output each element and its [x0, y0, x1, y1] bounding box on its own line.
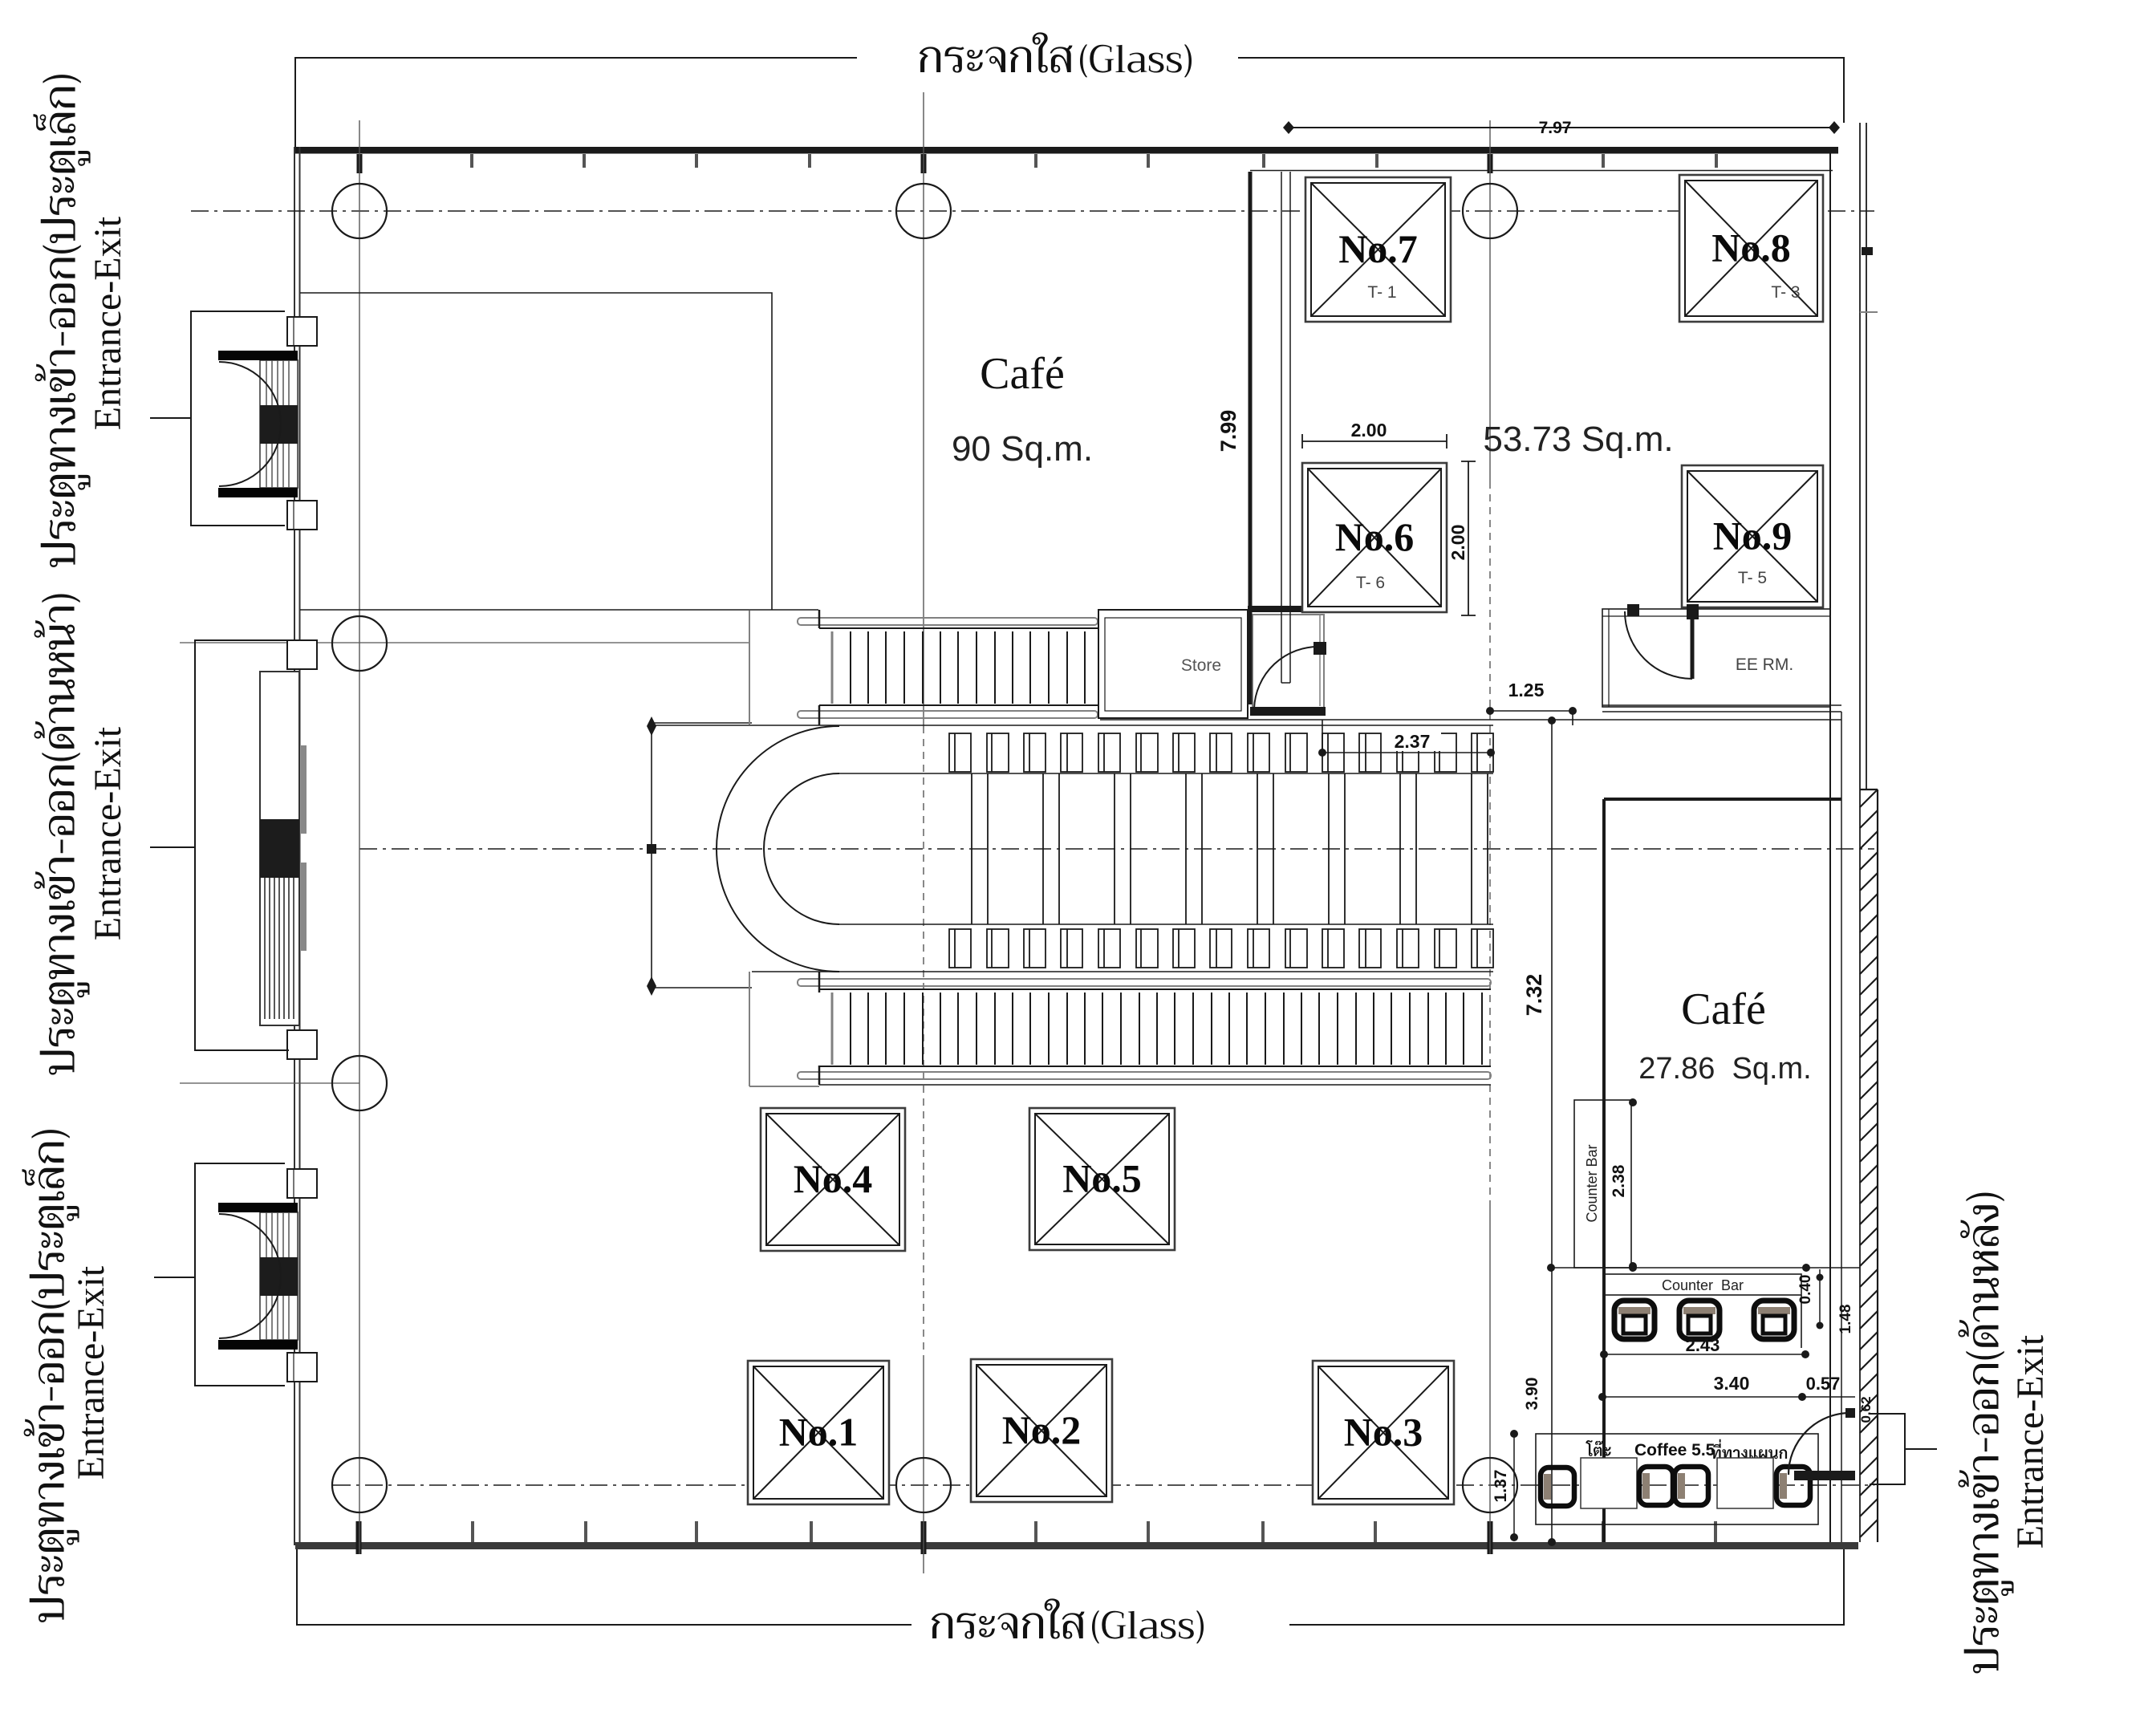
svg-text:1.25: 1.25: [1508, 680, 1545, 700]
svg-text:Entrance-Exit: Entrance-Exit: [70, 1265, 112, 1480]
svg-text:Café: Café: [980, 349, 1065, 399]
svg-text:0.62: 0.62: [1858, 1396, 1874, 1423]
svg-text:Store: Store: [1181, 656, 1221, 675]
svg-text:No.3: No.3: [1344, 1410, 1423, 1455]
svg-text:27.86 Sq.m.: 27.86 Sq.m.: [1638, 1052, 1811, 1086]
svg-text:No.6: No.6: [1335, 514, 1415, 559]
svg-text:EE RM.: EE RM.: [1736, 656, 1793, 674]
svg-text:1.48: 1.48: [1837, 1305, 1854, 1334]
svg-text:T- 3: T- 3: [1771, 283, 1800, 302]
svg-text:7.32: 7.32: [1522, 974, 1546, 1017]
svg-text:3.40: 3.40: [1714, 1373, 1750, 1394]
svg-text:No.8: No.8: [1711, 225, 1791, 270]
svg-text:1.37: 1.37: [1492, 1470, 1510, 1503]
svg-text:No.4: No.4: [794, 1156, 873, 1201]
svg-text:Counter Bar: Counter Bar: [1662, 1277, 1744, 1293]
svg-text:2.38: 2.38: [1610, 1164, 1628, 1197]
svg-text:Coffee 5.5: Coffee 5.5: [1634, 1441, 1715, 1459]
svg-text:T- 5: T- 5: [1738, 569, 1767, 587]
svg-text:2.00: 2.00: [1447, 525, 1468, 561]
svg-text:2.37: 2.37: [1395, 731, 1431, 752]
svg-text:Entrance-Exit: Entrance-Exit: [87, 726, 129, 940]
svg-text:Café: Café: [1681, 984, 1766, 1034]
svg-text:0.40: 0.40: [1797, 1275, 1814, 1305]
svg-text:90 Sq.m.: 90 Sq.m.: [952, 429, 1093, 469]
svg-text:7.97: 7.97: [1539, 119, 1572, 137]
svg-text:53.73 Sq.m.: 53.73 Sq.m.: [1483, 420, 1673, 459]
svg-text:No.9: No.9: [1713, 514, 1793, 558]
svg-text:0.57: 0.57: [1806, 1374, 1841, 1394]
svg-text:No.7: No.7: [1338, 226, 1418, 271]
svg-text:No.1: No.1: [779, 1410, 859, 1455]
svg-text:T- 1: T- 1: [1367, 283, 1396, 302]
svg-text:No.5: No.5: [1062, 1156, 1142, 1201]
svg-text:No.2: No.2: [1002, 1407, 1082, 1452]
svg-text:2.00: 2.00: [1351, 420, 1387, 440]
svg-text:Counter Bar: Counter Bar: [1584, 1144, 1600, 1222]
svg-text:Entrance-Exit: Entrance-Exit: [2009, 1334, 2052, 1549]
svg-text:3.90: 3.90: [1523, 1378, 1541, 1411]
svg-text:Entrance-Exit: Entrance-Exit: [87, 216, 129, 430]
svg-text:2.43: 2.43: [1686, 1335, 1720, 1355]
svg-text:7.99: 7.99: [1216, 410, 1240, 453]
svg-text:T- 6: T- 6: [1356, 574, 1385, 592]
